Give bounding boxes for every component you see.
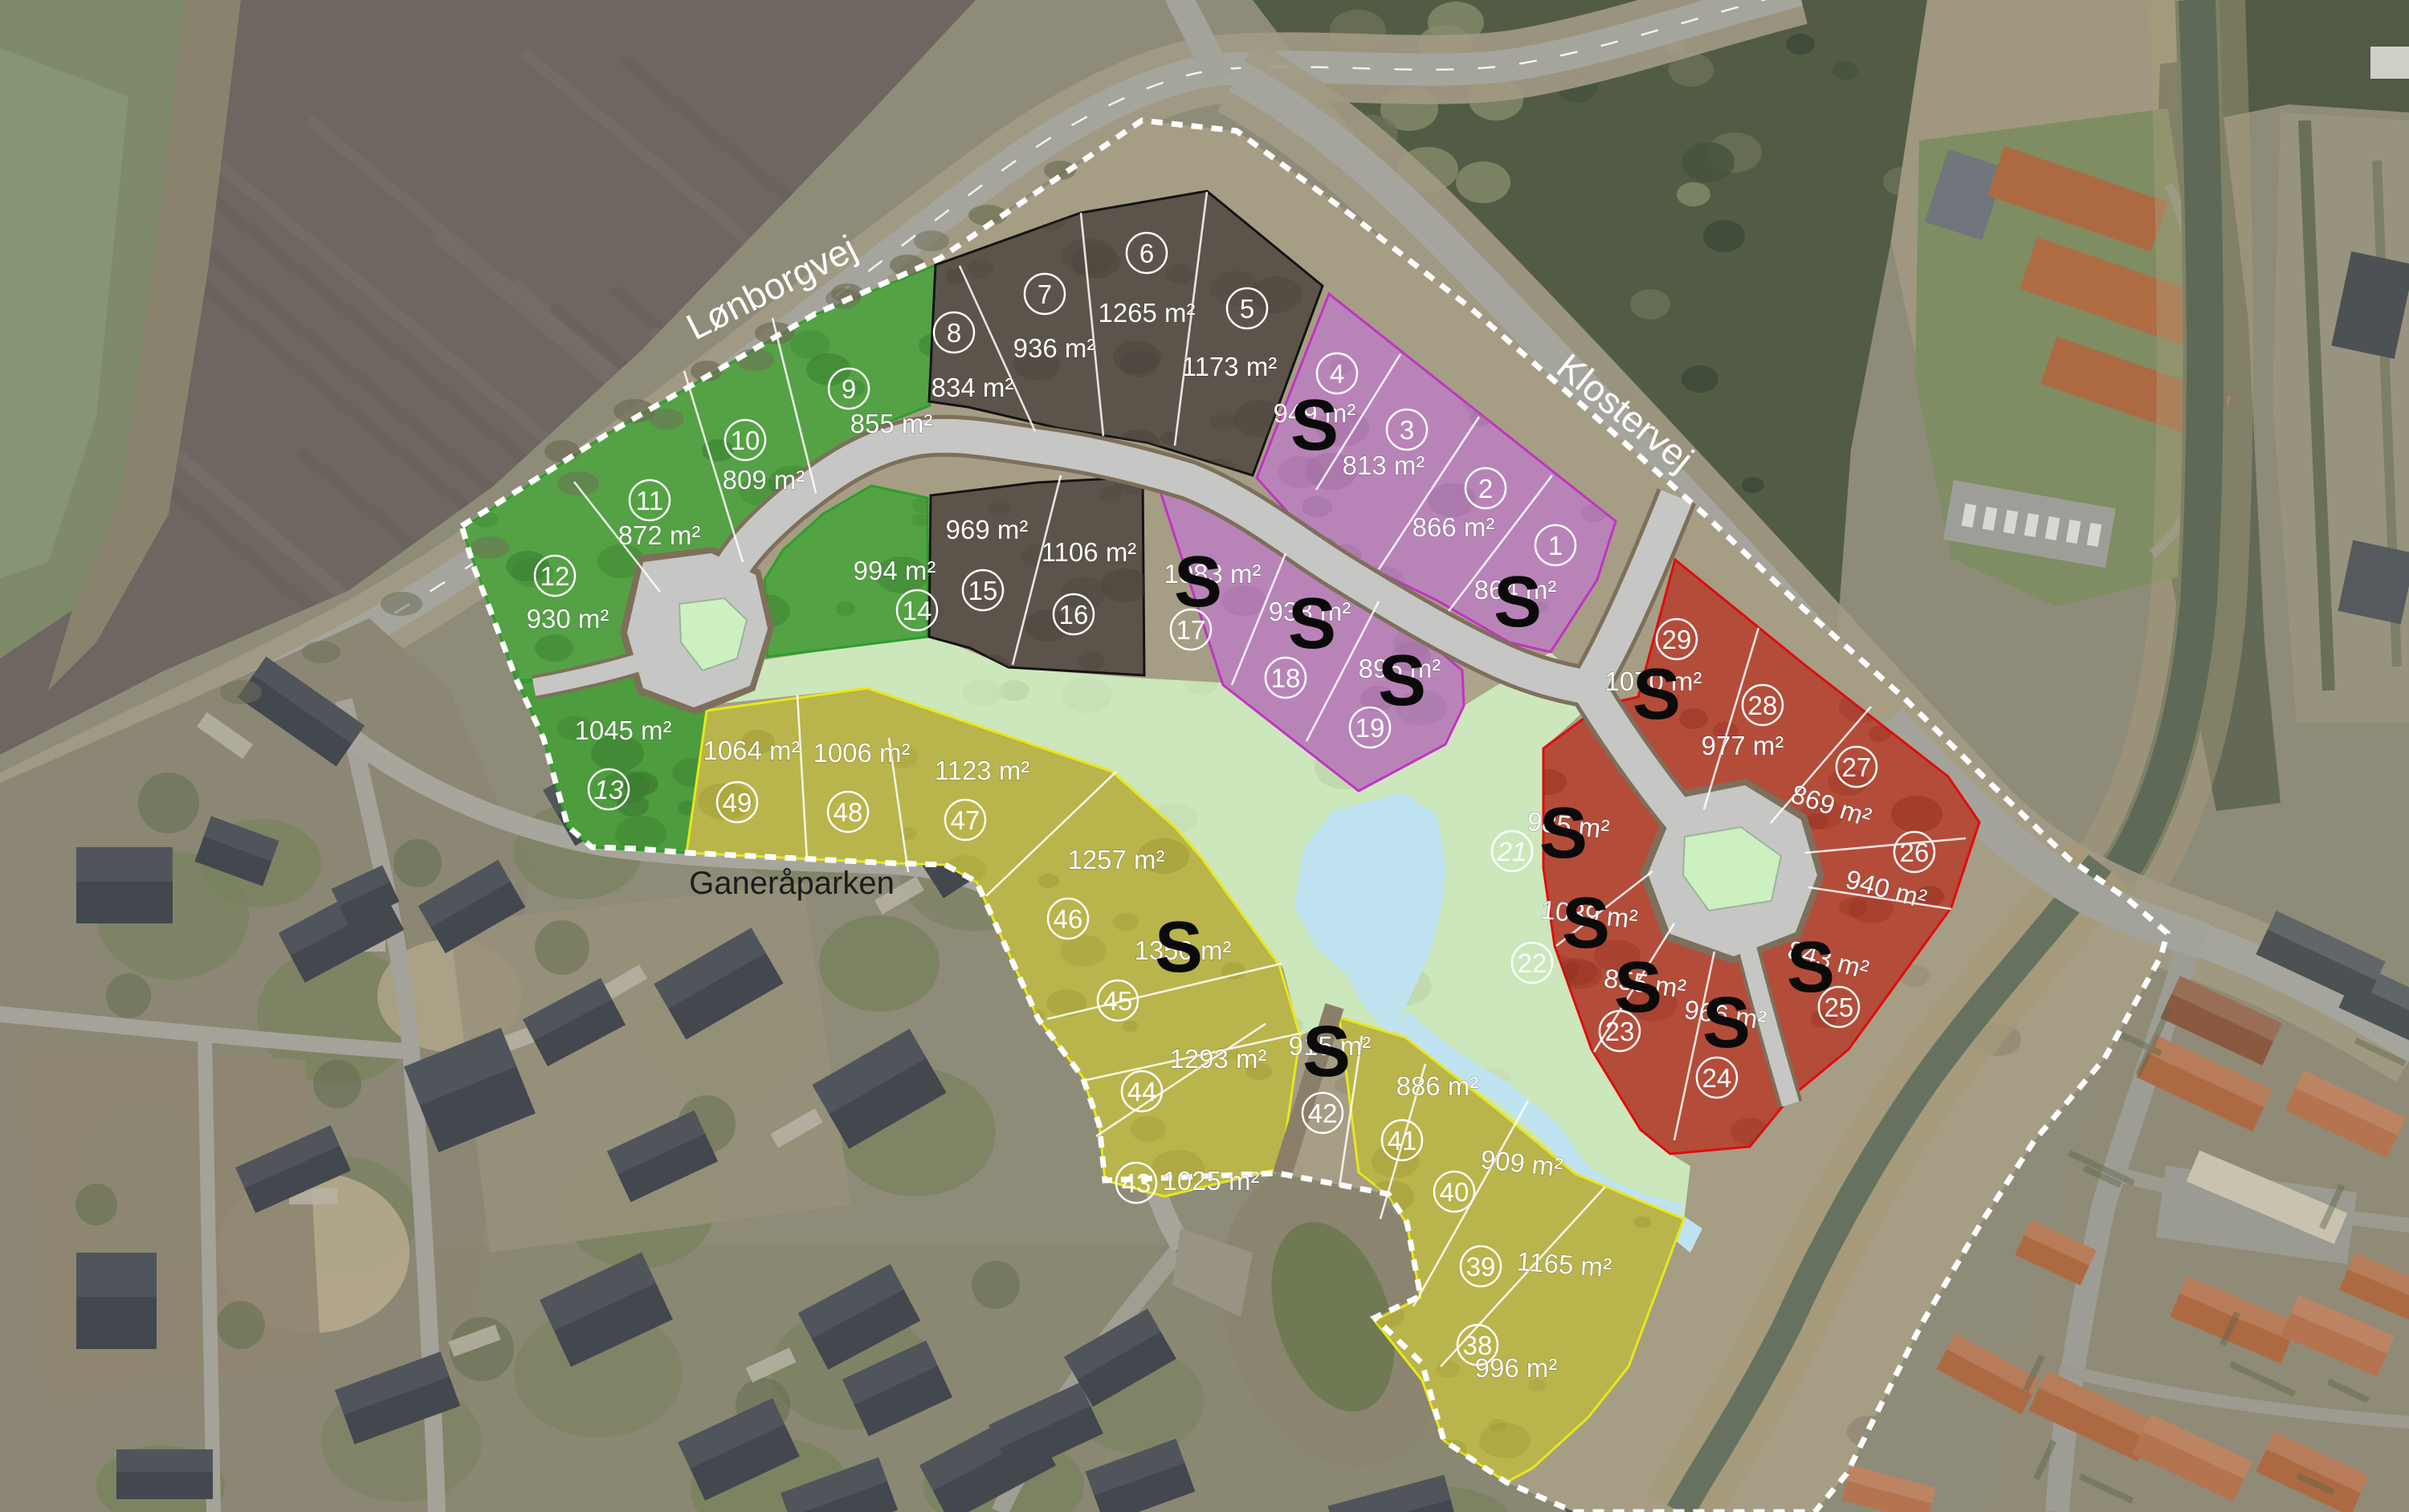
svg-text:1025 m²: 1025 m² (1162, 1166, 1259, 1196)
svg-text:S: S (1702, 983, 1751, 1063)
svg-text:872 m²: 872 m² (618, 520, 701, 550)
svg-text:866 m²: 866 m² (1412, 512, 1495, 542)
svg-text:5: 5 (1240, 294, 1254, 324)
svg-text:49: 49 (723, 788, 752, 817)
svg-text:S: S (1174, 542, 1222, 622)
svg-text:809 m²: 809 m² (723, 465, 805, 495)
svg-text:27: 27 (1842, 752, 1872, 782)
svg-text:S: S (1562, 883, 1610, 964)
svg-text:14: 14 (903, 596, 932, 626)
svg-text:45: 45 (1103, 986, 1133, 1016)
svg-text:969 m²: 969 m² (946, 515, 1029, 544)
svg-text:S: S (1539, 793, 1588, 874)
svg-text:48: 48 (834, 797, 863, 827)
svg-text:S: S (1155, 907, 1203, 988)
svg-text:S: S (1787, 927, 1835, 1008)
svg-text:S: S (1288, 584, 1336, 664)
svg-text:994 m²: 994 m² (854, 556, 936, 585)
svg-text:834 m²: 834 m² (931, 373, 1014, 402)
svg-text:6: 6 (1139, 238, 1154, 268)
svg-text:39: 39 (1466, 1252, 1496, 1282)
svg-text:1: 1 (1548, 531, 1563, 560)
svg-text:29: 29 (1662, 625, 1692, 654)
svg-text:12: 12 (540, 561, 570, 591)
svg-text:22: 22 (1518, 948, 1547, 978)
svg-text:16: 16 (1059, 600, 1089, 630)
svg-text:8: 8 (947, 318, 961, 348)
svg-text:S: S (1494, 562, 1542, 642)
svg-text:40: 40 (1440, 1177, 1469, 1207)
svg-text:S: S (1290, 385, 1339, 466)
svg-text:S: S (1632, 654, 1681, 735)
svg-text:977 m²: 977 m² (1702, 731, 1784, 760)
svg-text:1257 m²: 1257 m² (1067, 845, 1164, 874)
svg-text:S: S (1302, 1012, 1351, 1092)
svg-text:1173 m²: 1173 m² (1182, 352, 1278, 381)
svg-text:930 m²: 930 m² (527, 604, 609, 634)
svg-text:2: 2 (1478, 474, 1493, 503)
svg-text:1064 m²: 1064 m² (703, 736, 800, 765)
svg-text:9: 9 (842, 374, 856, 404)
svg-text:43: 43 (1122, 1168, 1152, 1198)
svg-text:44: 44 (1127, 1077, 1157, 1106)
svg-text:813 m²: 813 m² (1343, 450, 1425, 480)
svg-text:7: 7 (1037, 279, 1052, 309)
svg-text:10: 10 (731, 426, 760, 455)
svg-text:11: 11 (636, 486, 663, 516)
svg-text:1265 m²: 1265 m² (1098, 298, 1195, 328)
svg-text:13: 13 (594, 775, 624, 805)
svg-text:28: 28 (1748, 691, 1778, 720)
svg-text:21: 21 (1497, 837, 1527, 866)
svg-text:26: 26 (1900, 838, 1930, 867)
svg-text:46: 46 (1054, 904, 1083, 934)
svg-text:24: 24 (1702, 1063, 1732, 1093)
svg-text:855 m²: 855 m² (850, 409, 933, 438)
svg-text:42: 42 (1308, 1098, 1338, 1128)
svg-text:1123 m²: 1123 m² (935, 756, 1030, 785)
svg-text:936 m²: 936 m² (1013, 333, 1096, 363)
svg-text:1045 m²: 1045 m² (574, 715, 671, 745)
svg-text:18: 18 (1271, 663, 1301, 693)
svg-text:41: 41 (1388, 1126, 1417, 1155)
svg-text:996 m²: 996 m² (1475, 1353, 1558, 1383)
svg-text:S: S (1378, 641, 1426, 721)
svg-text:4: 4 (1330, 359, 1344, 389)
svg-text:1006 m²: 1006 m² (813, 738, 910, 768)
svg-text:3: 3 (1400, 415, 1414, 445)
svg-text:47: 47 (951, 805, 980, 835)
svg-text:15: 15 (968, 576, 998, 605)
svg-text:Ganeråparken: Ganeråparken (689, 866, 895, 901)
svg-text:1106 m²: 1106 m² (1041, 537, 1137, 567)
svg-text:886 m²: 886 m² (1396, 1071, 1479, 1101)
svg-text:S: S (1614, 948, 1662, 1028)
svg-text:1293 m²: 1293 m² (1169, 1044, 1266, 1074)
